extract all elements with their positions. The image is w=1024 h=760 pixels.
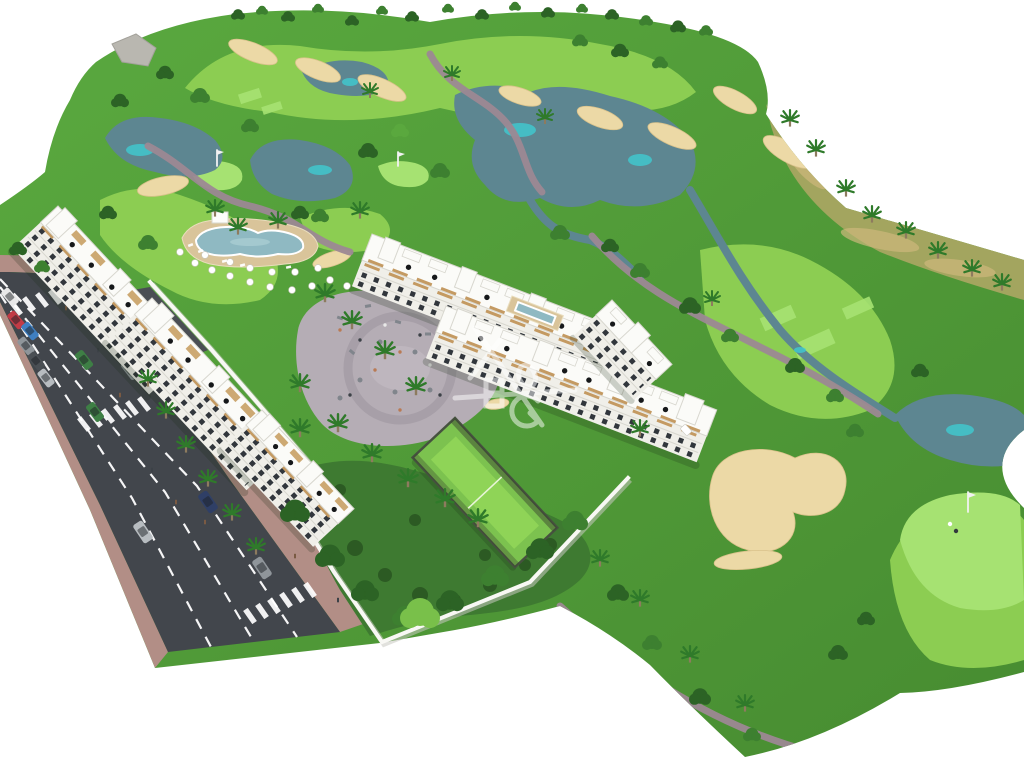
pedestrian: [151, 468, 153, 473]
person: [438, 393, 441, 396]
render-image: [0, 0, 1024, 760]
umbrella-icon: [267, 284, 274, 291]
umbrella-icon: [289, 287, 296, 294]
aerial-render: [0, 0, 1024, 760]
person: [418, 333, 421, 336]
pedestrian: [294, 554, 296, 559]
golfer: [954, 529, 958, 533]
bush: [378, 568, 392, 582]
water-highlight: [628, 154, 652, 166]
equipment: [425, 333, 431, 336]
person: [398, 350, 401, 353]
water-highlight: [308, 165, 332, 175]
umbrella-icon: [247, 279, 254, 286]
pedestrian: [337, 598, 339, 603]
person: [348, 393, 351, 396]
bush: [479, 549, 491, 561]
person: [338, 328, 341, 331]
umbrella-icon: [209, 267, 216, 274]
umbrella-icon: [227, 259, 234, 266]
umbrella-icon: [247, 265, 254, 272]
equipment: [338, 396, 343, 401]
person: [383, 323, 386, 326]
water-highlight: [342, 78, 358, 86]
bush: [347, 540, 363, 556]
bush: [409, 514, 421, 526]
umbrella-icon: [202, 252, 209, 259]
equipment: [428, 388, 433, 393]
pool-highlight: [230, 238, 270, 246]
umbrella-icon: [292, 269, 299, 276]
golfer: [948, 522, 952, 526]
equipment: [413, 350, 418, 355]
pedestrian: [119, 393, 121, 398]
person: [373, 368, 376, 371]
umbrella-icon: [327, 277, 334, 284]
water-highlight: [794, 347, 806, 353]
water-highlight: [946, 424, 974, 436]
umbrella-icon: [315, 265, 322, 272]
pedestrian: [175, 500, 177, 505]
person: [358, 338, 361, 341]
umbrella-icon: [269, 269, 276, 276]
umbrella-icon: [177, 249, 184, 256]
pedestrian: [204, 520, 206, 525]
equipment: [358, 378, 363, 383]
umbrella-icon: [227, 273, 234, 280]
equipment: [393, 390, 398, 395]
person: [398, 408, 401, 411]
umbrella-icon: [192, 260, 199, 267]
umbrella-icon: [309, 283, 316, 290]
